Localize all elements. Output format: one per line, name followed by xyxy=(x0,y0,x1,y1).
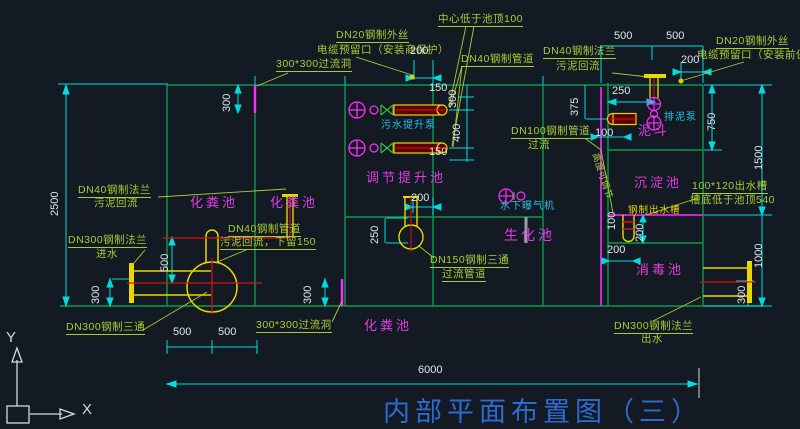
label-dn20-right-line2: 电缆预留口（安装前保护） xyxy=(697,50,800,61)
room-label-sediment-tank: 沉淀池 xyxy=(634,176,682,189)
equip-label-aerator: 水下曝气机 xyxy=(500,202,555,212)
label-dn40-flange-right-line1: DN40钢制法兰 xyxy=(543,46,616,59)
label-dn100-line2: 过流 xyxy=(528,140,550,151)
dim-500-top-a: 500 xyxy=(614,31,632,42)
dim-375: 375 xyxy=(570,98,581,116)
label-dn300-tee: DN300钢制三通 xyxy=(66,322,145,335)
label-dn40-flange-left-line1: DN40钢制法兰 xyxy=(78,185,151,198)
label-dn150-tee-line1: DN150钢制三通 xyxy=(430,255,509,268)
equip-label-mud-pump: 排泥泵 xyxy=(664,113,697,123)
dim-500-bottom-a: 500 xyxy=(173,327,191,338)
dim-250-tee: 250 xyxy=(370,226,381,244)
dim-6000: 6000 xyxy=(418,365,442,376)
dim-200-weir-bottom: 200 xyxy=(607,245,625,256)
dim-200-dn20-left: 200 xyxy=(410,46,428,57)
dim-200-dn20-right: 200 xyxy=(681,55,699,66)
cad-model-space[interactable]: 化粪池 化粪池 化粪池 调节提升池 生化池 沉淀池 泥斗 消毒池 污水提升泵 水… xyxy=(0,0,800,429)
dim-200-weir: 200 xyxy=(635,224,646,242)
dim-400-pump: 400 xyxy=(452,124,463,142)
dim-200-pump: 200 xyxy=(411,193,429,204)
room-label-septic-2: 化粪池 xyxy=(270,196,318,209)
room-label-regulating-tank: 调节提升池 xyxy=(366,171,446,184)
label-dn40-return-line2: 污泥回流，下留150 xyxy=(220,237,316,250)
label-dn40-flange-left-line2: 污泥回流 xyxy=(94,198,138,209)
label-outlet-channel-line1: 100*120出水槽 xyxy=(692,181,768,194)
dim-1500: 1500 xyxy=(754,146,765,170)
label-overflow-hole-top: 300*300过流洞 xyxy=(276,59,352,72)
label-outlet-channel-line2: 槽底低于池顶540 xyxy=(690,195,775,206)
dim-500-left: 500 xyxy=(160,254,171,272)
equip-label-outlet-channel: 钢制出水槽 xyxy=(628,206,681,216)
label-dn40-flange-right-line2: 污泥回流 xyxy=(556,61,600,72)
dim-1000: 1000 xyxy=(754,244,765,268)
dn150-tee-symbol xyxy=(399,197,423,252)
room-label-septic-3: 化粪池 xyxy=(364,319,412,332)
dim-750: 750 xyxy=(707,113,718,131)
dim-150-pump-bottom: 150 xyxy=(429,147,447,158)
dim-150-pump-top: 150 xyxy=(429,83,447,94)
label-dn300-inlet-line2: 进水 xyxy=(96,249,118,260)
dim-500-top-b: 500 xyxy=(666,31,684,42)
label-dn20-left-line2: 电缆预留口（安装商保护） xyxy=(317,45,449,56)
label-dn40-return-line1: DN40钢制管道 xyxy=(228,224,301,237)
room-label-septic-1: 化粪池 xyxy=(190,196,238,209)
note-center-below-top: 中心低于池顶100 xyxy=(438,14,523,27)
room-label-bio-tank: 生化池 xyxy=(504,228,555,242)
dim-100-weir: 100 xyxy=(607,212,618,230)
dim-300-outlet: 300 xyxy=(737,286,748,304)
dim-500-bottom-b: 500 xyxy=(218,327,236,338)
ucs-y-label: Y xyxy=(6,330,16,345)
dim-100-hopper: 100 xyxy=(595,128,613,139)
label-dn300-outlet-line2: 出水 xyxy=(641,334,663,345)
inlet-pipe-assembly xyxy=(127,194,298,314)
dim-2500: 2500 xyxy=(50,192,61,216)
room-label-disinfect-tank: 消毒池 xyxy=(636,263,684,276)
room-label-mud-hopper: 泥斗 xyxy=(638,124,670,137)
dim-250-hopper: 250 xyxy=(612,86,630,97)
label-dn300-inlet-line1: DN300钢制法兰 xyxy=(68,235,147,248)
label-dn100-line1: DN100钢制管道 xyxy=(511,126,590,139)
label-dn300-outlet-line1: DN300钢制法兰 xyxy=(614,321,693,334)
label-dn40-pipe: DN40钢制管道 xyxy=(461,54,534,67)
ucs-x-label: X xyxy=(82,402,92,417)
weir-pipe-symbol xyxy=(623,215,634,242)
dim-300-bottom-left-1: 300 xyxy=(91,286,102,304)
dim-300-pump: 300 xyxy=(448,90,459,108)
label-dn20-right-line1: DN20钢制外丝 xyxy=(716,36,789,49)
dim-300-bottom-left-2: 300 xyxy=(303,286,314,304)
drawing-title: 内部平面布置图（三） xyxy=(383,399,703,426)
label-overflow-hole-bottom: 300*300过流洞 xyxy=(256,320,332,333)
dim-300-top-left: 300 xyxy=(222,94,233,112)
ucs-axis-icon xyxy=(7,348,74,423)
equip-label-sewage-pump: 污水提升泵 xyxy=(381,121,436,131)
label-dn150-tee-line2: 过流管道 xyxy=(442,269,486,282)
label-dn20-left-line1: DN20钢制外丝 xyxy=(336,30,409,43)
